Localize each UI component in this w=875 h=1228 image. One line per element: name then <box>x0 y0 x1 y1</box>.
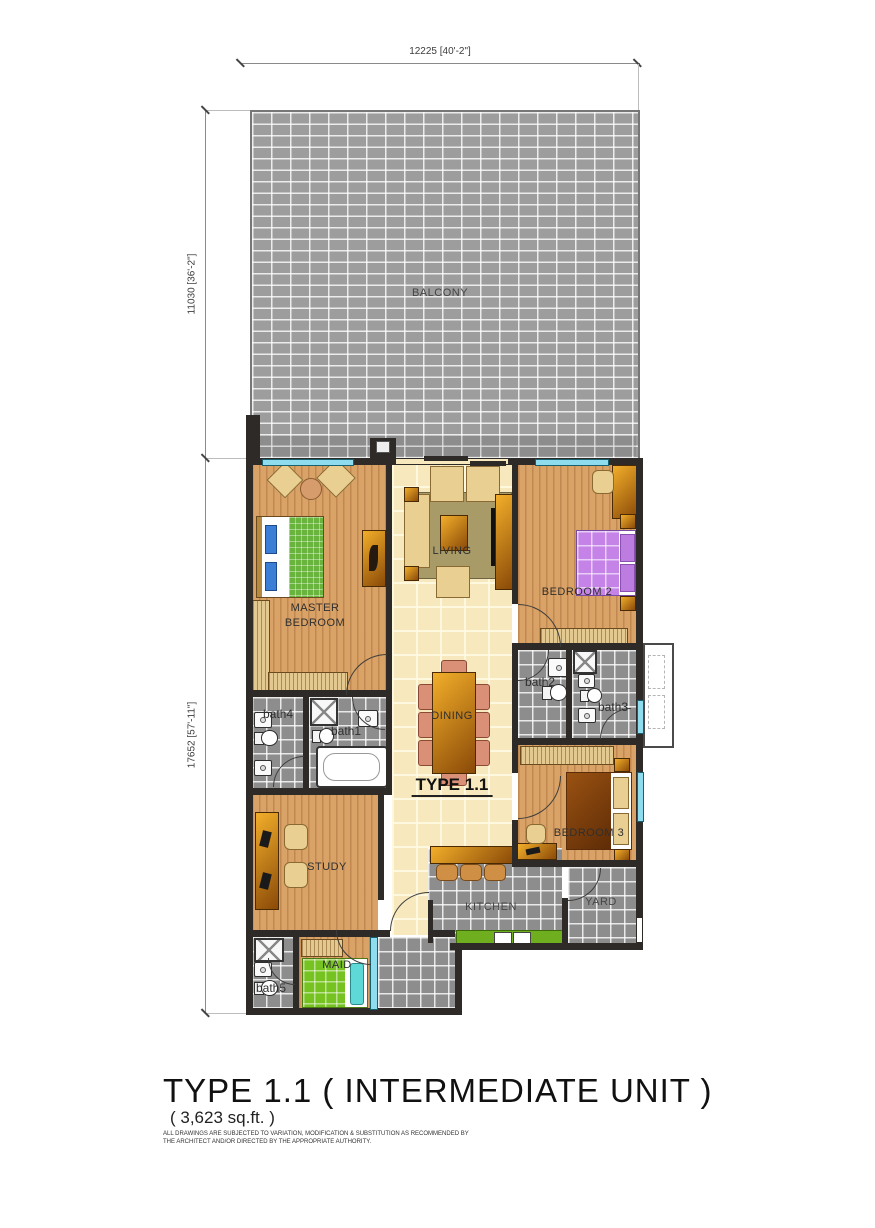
master-window <box>262 459 354 466</box>
bath3-label: bath3 <box>598 700 628 714</box>
laptop-icon <box>259 872 272 890</box>
bath2-label: bath2 <box>525 675 555 689</box>
plant-icon <box>369 545 378 571</box>
yard-label: YARD <box>585 896 617 908</box>
bath23-bottom-wall <box>512 738 643 745</box>
dimension-line-top <box>240 63 640 64</box>
master-bedroom-label-line2: BEDROOM <box>285 617 345 629</box>
armchair-icon <box>430 466 464 502</box>
shower-icon <box>573 650 597 674</box>
bed-pillow <box>613 777 629 809</box>
bedside-table <box>620 514 636 529</box>
bedroom3-left-wall-upper <box>512 745 518 773</box>
extension-line <box>205 458 246 459</box>
maid-wardrobe <box>301 939 343 957</box>
bed-pillow <box>620 564 635 592</box>
dimension-line-left <box>205 110 206 1013</box>
bath5-label: bath5 <box>256 981 286 995</box>
bedside-table <box>620 596 636 611</box>
ac-unit <box>648 655 665 689</box>
bar-stool <box>436 864 458 881</box>
master-bedroom-label: MASTER BEDROOM <box>285 601 345 631</box>
exterior-wall-bottom-left <box>246 1008 462 1015</box>
bed-pillow <box>350 963 364 1005</box>
balcony-edge-shadow <box>252 436 636 456</box>
bedside-table <box>614 758 630 772</box>
downlight-icon <box>404 487 419 502</box>
exterior-wall-bottom-right <box>450 943 643 950</box>
balcony-label: BALCONY <box>412 287 468 299</box>
master-bedroom-label-line1: MASTER <box>291 602 340 614</box>
master-bed <box>256 516 324 598</box>
study-label: STUDY <box>307 861 347 873</box>
kitchen-label: KITCHEN <box>465 901 517 913</box>
bed-headboard <box>257 517 262 597</box>
corridor-floor <box>378 937 455 1008</box>
master-console <box>362 530 386 587</box>
balcony-floor <box>250 110 640 460</box>
shower-icon <box>310 698 338 726</box>
sofa <box>404 494 430 568</box>
bedroom3-window <box>637 772 644 822</box>
balcony-pillar <box>246 415 260 458</box>
tv-console <box>495 494 513 590</box>
bath2-bath3-divider <box>566 650 572 738</box>
bedroom2-label: BEDROOM 2 <box>542 586 613 598</box>
bedroom2-window <box>535 459 609 466</box>
extension-line <box>205 110 250 111</box>
sliding-door-panel <box>470 461 506 466</box>
toilet-icon <box>254 730 278 745</box>
sink-icon <box>254 760 272 776</box>
living-label: LIVING <box>432 545 471 557</box>
kitchen-bar-counter <box>430 846 514 864</box>
desk <box>517 843 557 860</box>
kitchen-yard-divider <box>562 898 568 943</box>
bath4-label: bath4 <box>263 707 293 721</box>
round-table-icon <box>300 478 322 500</box>
bed-pillow <box>620 534 635 562</box>
study-right-wall <box>378 795 384 900</box>
floor-plan-page: 12225 [40'-2"] 11030 [36'-2"] 17652 [57'… <box>0 0 875 1228</box>
sink-icon <box>578 674 595 688</box>
bed-pillow <box>265 562 277 591</box>
study-desk <box>255 812 279 910</box>
dimension-label-left-upper: 11030 [36'-2"] <box>187 254 198 315</box>
bedroom2-left-wall <box>512 458 518 604</box>
chair <box>284 862 308 888</box>
bar-stool <box>460 864 482 881</box>
dimension-label-top: 12225 [40'-2"] <box>340 46 540 57</box>
bedroom3-wardrobe <box>520 746 614 765</box>
yard-opening <box>637 918 642 942</box>
master-wardrobe <box>268 672 348 692</box>
tv-icon <box>491 508 495 566</box>
disclaimer-line2: THE ARCHITECT AND/OR DIRECTED BY THE APP… <box>163 1139 371 1145</box>
entry-step-plate <box>376 441 390 453</box>
sliding-door-panel <box>424 456 468 461</box>
ac-unit <box>648 695 665 729</box>
chair <box>526 824 546 844</box>
chair <box>592 470 614 494</box>
dining-table <box>432 672 476 774</box>
drawing-title: TYPE 1.1 ( INTERMEDIATE UNIT ) <box>163 1072 713 1110</box>
laptop-icon <box>526 847 541 856</box>
maid-window <box>370 937 378 1010</box>
bath-row-bottom-wall <box>246 788 392 795</box>
extension-line <box>638 64 639 110</box>
dining-label: DINING <box>431 710 473 722</box>
bed-pillow <box>265 525 277 554</box>
desk <box>612 465 638 519</box>
bar-stool <box>484 864 506 881</box>
disclaimer-line1: ALL DRAWINGS ARE SUBJECTED TO VARIATION,… <box>163 1131 469 1137</box>
bed-blanket <box>289 517 323 597</box>
bedroom3-label: BEDROOM 3 <box>554 827 625 839</box>
drawing-disclaimer: ALL DRAWINGS ARE SUBJECTED TO VARIATION,… <box>163 1131 469 1146</box>
armchair-icon <box>436 566 470 598</box>
drawing-area: ( 3,623 sq.ft. ) <box>170 1108 275 1128</box>
bath1-label: bath1 <box>331 724 361 738</box>
extension-line <box>205 1013 246 1014</box>
bathtub-icon <box>316 746 388 788</box>
corridor-right-wall <box>455 943 462 1015</box>
dimension-label-left-lower: 17652 [57'-11"] <box>187 702 198 768</box>
bedroom3-bottom-wall <box>512 860 643 867</box>
laptop-icon <box>259 830 272 848</box>
sink-icon <box>578 708 596 723</box>
bath1-right-wall <box>386 697 392 795</box>
downlight-icon <box>404 566 419 581</box>
plan-type-label: TYPE 1.1 <box>412 775 493 797</box>
maid-label: MAID <box>322 959 352 971</box>
chair <box>284 824 308 850</box>
